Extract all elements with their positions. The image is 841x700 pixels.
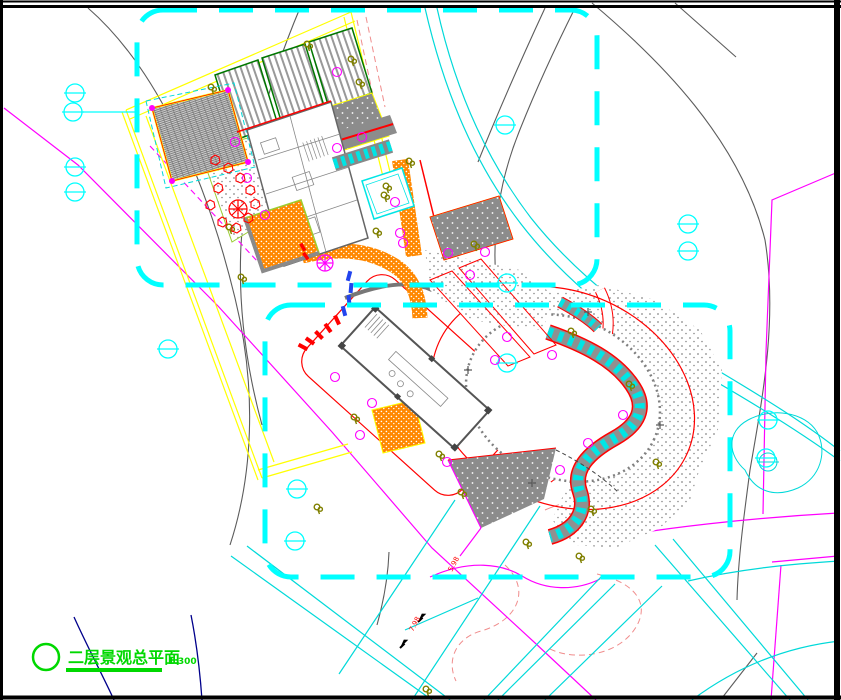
site-plan-canvas: 7.985.98 二层景观总平面 1:300 bbox=[0, 0, 841, 700]
flow-arrow bbox=[397, 638, 410, 648]
survey-mark bbox=[64, 158, 86, 176]
shrub-symbol bbox=[368, 399, 377, 408]
title-underline bbox=[66, 668, 162, 672]
survey-mark bbox=[286, 480, 308, 498]
survey-mark bbox=[284, 532, 306, 550]
survey-mark bbox=[494, 116, 516, 134]
road-labels-layer: 7.985.98 bbox=[408, 555, 461, 633]
drawing-title: 二层景观总平面 bbox=[68, 648, 180, 667]
detail-reference-circle bbox=[33, 644, 59, 670]
survey-mark bbox=[157, 340, 179, 358]
elevation-label: 7.98 bbox=[408, 615, 422, 633]
elevation-label: 5.98 bbox=[447, 555, 461, 573]
survey-mark bbox=[64, 183, 86, 201]
survey-mark bbox=[677, 215, 699, 233]
title-block: 二层景观总平面 1:300 bbox=[33, 644, 197, 672]
tree-symbol bbox=[373, 228, 381, 238]
shrub-symbol bbox=[356, 431, 365, 440]
shrub-symbol bbox=[331, 373, 340, 382]
shrub-symbol bbox=[481, 248, 490, 257]
pond bbox=[732, 413, 822, 493]
tree-symbol bbox=[523, 539, 531, 549]
drawing-scale: 1:300 bbox=[168, 657, 197, 667]
lower-garden-area bbox=[293, 246, 730, 556]
upper-terrace-gravel bbox=[425, 250, 560, 330]
roof-2 bbox=[430, 196, 513, 260]
survey-mark bbox=[677, 242, 699, 260]
survey-mark bbox=[62, 103, 84, 121]
tree-symbol bbox=[314, 504, 322, 514]
tree-symbol bbox=[576, 553, 584, 563]
dark-gravel-slope bbox=[448, 448, 556, 528]
survey-mark bbox=[64, 84, 86, 102]
feature-tree-magenta bbox=[317, 255, 333, 271]
survey-mark bbox=[755, 449, 777, 467]
